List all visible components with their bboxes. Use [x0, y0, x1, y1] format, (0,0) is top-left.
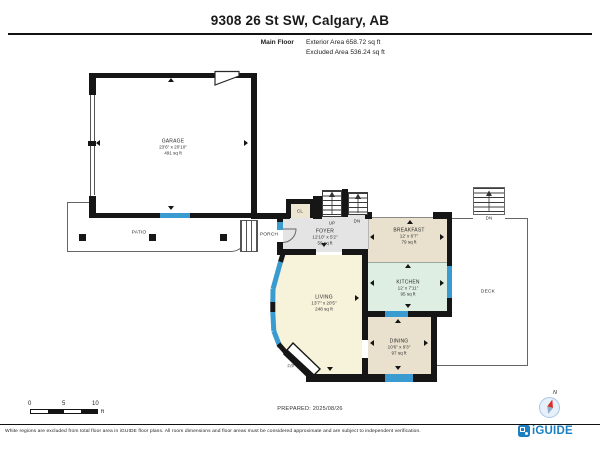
deck-stairs-down-label: DN	[486, 216, 493, 221]
room-label-kitchen: KITCHEN 12' x 7'11" 95 sq ft	[396, 279, 419, 296]
compass-needle-south	[545, 406, 553, 414]
room-label-living: LIVING 13'7" x 20'5" 248 sq ft	[311, 294, 336, 311]
room-label-closet: CL	[297, 209, 303, 214]
compass-needle	[537, 395, 563, 421]
room-label-porch: PORCH	[260, 233, 278, 238]
floor-plan: GARAGE 23'6" x 20'10" 491 sq ft FOYER 12…	[0, 0, 600, 462]
plan-vector-layer	[0, 0, 600, 462]
stairs-up-label: UP	[329, 221, 336, 226]
garage-door-swing	[215, 72, 239, 86]
dimension-tick	[355, 295, 359, 301]
dimension-tick	[244, 140, 248, 146]
dimension-tick	[327, 367, 333, 371]
room-label-patio: PATIO	[132, 231, 147, 236]
entry-door-swing	[283, 229, 296, 243]
iguide-logo-icon	[518, 425, 530, 437]
room-living-fill	[271, 255, 362, 374]
floor-plan-page: 9308 26 St SW, Calgary, AB Main Floor Ex…	[0, 0, 600, 462]
iguide-logo-text: iGUIDE	[532, 425, 573, 437]
iguide-brand: iGUIDE	[518, 425, 573, 437]
dimension-tick	[440, 280, 444, 286]
room-label-dining: DINING 10'6" x 9'3" 97 sq ft	[388, 338, 411, 355]
dimension-tick	[440, 234, 444, 240]
dimension-tick	[96, 140, 100, 146]
dimension-tick	[405, 264, 411, 268]
compass-north-label: N	[553, 390, 557, 396]
room-label-fireplace: F/P	[287, 364, 294, 369]
dimension-tick	[168, 206, 174, 210]
stair-arrow-icon	[329, 192, 335, 198]
room-label-breakfast: BREAKFAST 12' x 6'7" 79 sq ft	[393, 227, 424, 244]
compass-icon	[539, 397, 560, 418]
stair-arrow-icon	[486, 191, 492, 197]
room-label-garage: GARAGE 23'6" x 20'10" 491 sq ft	[159, 138, 187, 155]
dimension-tick	[424, 340, 428, 346]
dimension-tick	[395, 319, 401, 323]
dimension-tick	[405, 304, 411, 308]
iguide-logo-glyph	[525, 432, 528, 435]
dimension-tick	[395, 366, 401, 370]
stairs-down-label: DN	[354, 219, 361, 224]
dimension-tick	[370, 234, 374, 240]
bay-window	[273, 312, 274, 331]
dimension-tick	[370, 340, 374, 346]
room-label-deck: DECK	[481, 290, 495, 295]
wall-segment	[281, 252, 284, 262]
dimension-tick	[407, 220, 413, 224]
dimension-tick	[168, 78, 174, 82]
room-label-foyer: FOYER 12'10" x 5'2" 59 sq ft	[312, 228, 337, 245]
dimension-tick	[370, 280, 374, 286]
stair-arrow-icon	[355, 194, 361, 200]
iguide-logo-glyph	[520, 427, 525, 432]
